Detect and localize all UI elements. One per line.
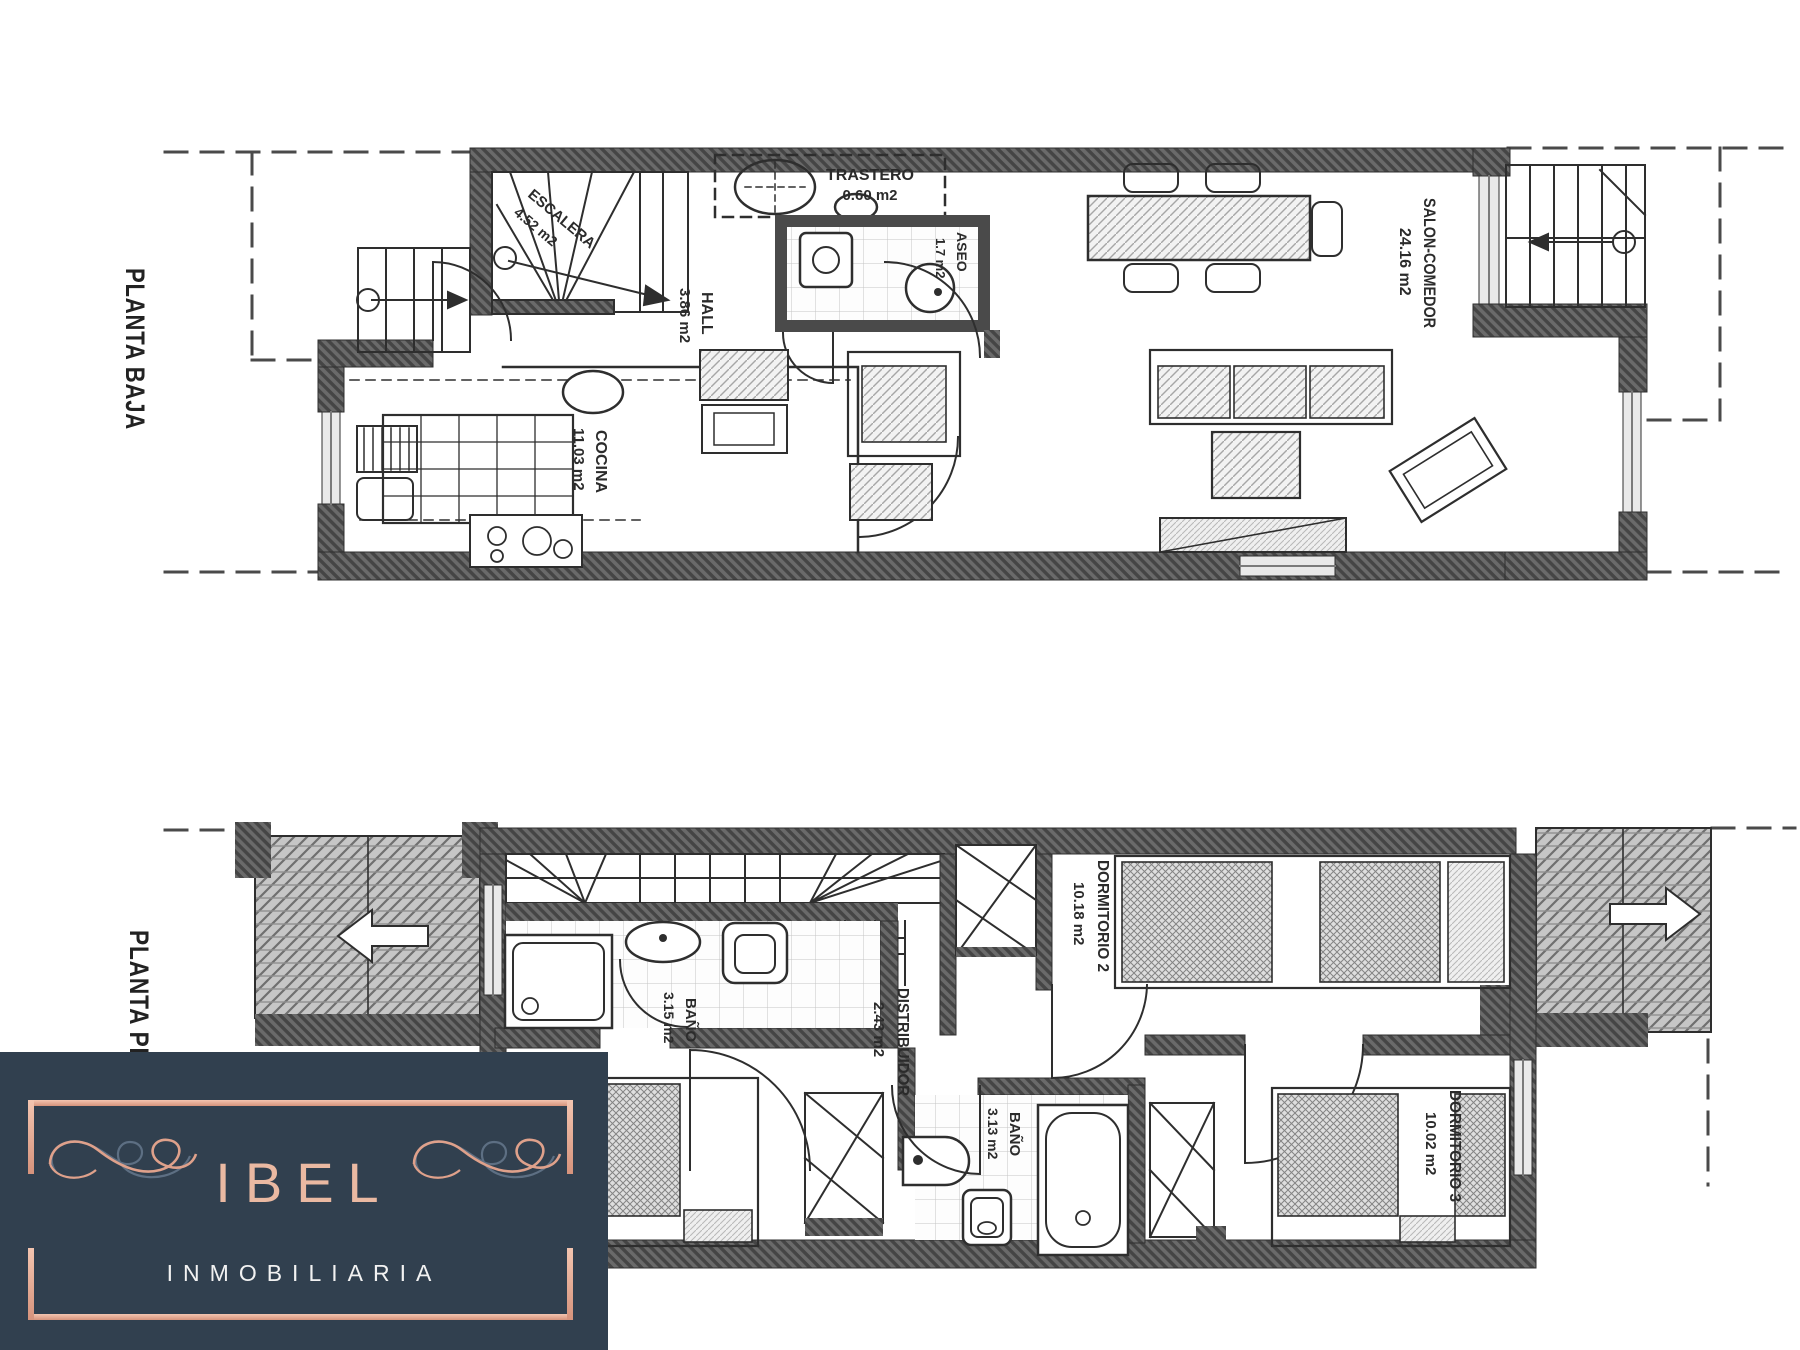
salon-label: SALON-COMEDOR bbox=[1420, 198, 1439, 328]
distribuidor-label: DISTRIBUIDOR bbox=[894, 988, 911, 1096]
hall-area: 3.86 m2 bbox=[676, 288, 693, 343]
hall-label: HALL bbox=[698, 292, 715, 335]
cocina-area: 11.03 m2 bbox=[570, 428, 587, 491]
logo-subtitle-text: INMOBILIARIA bbox=[0, 1260, 608, 1287]
logo-brand-text: IBEL bbox=[0, 1150, 608, 1215]
planta-baja-plan: PLANTA BAJA ESCALERA 4.52 m2 TRASTERO 0.… bbox=[120, 148, 1790, 580]
logo-frame-bottom bbox=[28, 1314, 573, 1320]
bano1-area: 3.15 m2 bbox=[661, 992, 677, 1044]
aseo-label: ASEO bbox=[954, 232, 970, 272]
dormitorio2-bed bbox=[1115, 856, 1510, 988]
dormitorio2-area: 10.18 m2 bbox=[1070, 882, 1087, 945]
aseo-room bbox=[781, 221, 984, 383]
dormitorio3-area: 10.02 m2 bbox=[1422, 1112, 1439, 1175]
dormitorio3-label: DORMITORIO 3 bbox=[1446, 1090, 1463, 1202]
trastero-area: 0.60 m2 bbox=[842, 187, 897, 204]
floorplan-page: PLANTA BAJA ESCALERA 4.52 m2 TRASTERO 0.… bbox=[0, 0, 1800, 1350]
bano2-label: BAÑO bbox=[1006, 1112, 1024, 1156]
salon-area: 24.16 m2 bbox=[1396, 228, 1413, 296]
dormitorio2-label: DORMITORIO 2 bbox=[1094, 860, 1111, 972]
terrace-left bbox=[235, 822, 498, 1046]
agency-logo-card: IBEL INMOBILIARIA bbox=[0, 1052, 608, 1350]
exterior-stair-right bbox=[1506, 165, 1645, 307]
aseo-area: 1.7 m2 bbox=[933, 238, 948, 278]
cocina-label: COCINA bbox=[592, 430, 609, 494]
bano1-label: BAÑO bbox=[682, 998, 700, 1042]
floor-title-baja: PLANTA BAJA bbox=[120, 268, 150, 430]
logo-frame-top bbox=[28, 1100, 573, 1106]
dormitorio3-bed bbox=[1272, 1088, 1510, 1246]
trastero-label: TRASTERO bbox=[826, 167, 914, 184]
bano2-area: 3.13 m2 bbox=[985, 1108, 1001, 1160]
distribuidor-area: 2.43 m2 bbox=[870, 1002, 887, 1057]
